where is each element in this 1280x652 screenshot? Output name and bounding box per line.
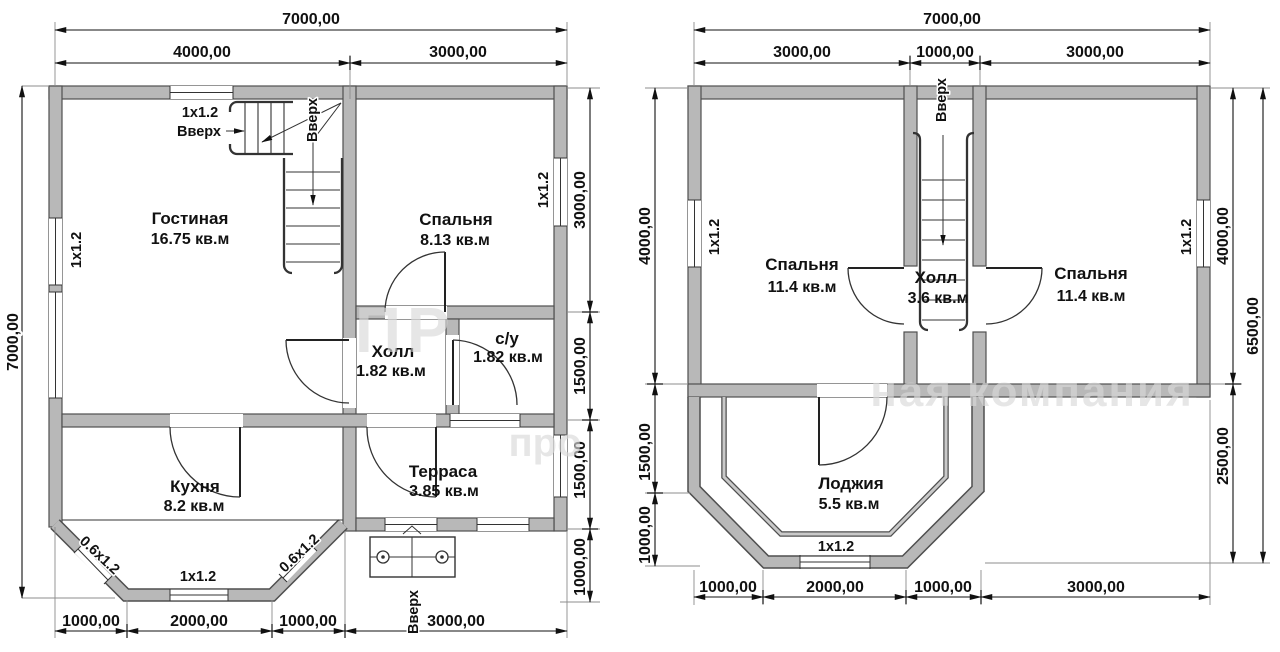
watermark-big: ПР [355, 294, 456, 366]
stairs-up-rotated-label: Вверх [934, 78, 950, 122]
dim-left-seg3: 1000,00 [637, 506, 654, 564]
room-label-hall: Холл [915, 268, 958, 287]
dim-right-seg4: 1000,00 [572, 538, 589, 596]
dim-bottom-seg3: 1000,00 [279, 613, 337, 630]
room-area-bedroom-right: 11.4 кв.м [1057, 288, 1126, 305]
dim-right-seg1: 3000,00 [572, 171, 589, 229]
watermark-partial: про [508, 421, 581, 465]
dim-left-seg1: 4000,00 [637, 207, 654, 265]
dim-top-seg1: 3000,00 [773, 44, 831, 61]
loggia-inner-rail [724, 397, 946, 534]
stairs-up-label: Вверх [177, 124, 221, 140]
left-plan-windows [49, 86, 567, 601]
room-label-bedroom-right: Спальня [1054, 264, 1127, 283]
window-label-left: 1х1.2 [707, 219, 723, 255]
watermark-company: ная компания [870, 367, 1194, 416]
dim-right-seg2: 2500,00 [1215, 427, 1232, 485]
window-right-bedroom [1197, 200, 1210, 267]
dim-top-total: 7000,00 [923, 11, 981, 28]
dim-top-seg2: 1000,00 [916, 44, 974, 61]
window-terrace-south-2 [477, 518, 529, 531]
window-label-top: 1х1.2 [182, 105, 218, 121]
door-living-hall [286, 338, 356, 408]
dim-bottom-seg4: 3000,00 [1067, 579, 1125, 596]
stairs-up-rotated-label: Вверх [305, 98, 321, 142]
door-bedroom-right [986, 268, 1042, 324]
room-label-wc: с/у [495, 329, 519, 348]
room-label-bedroom: Спальня [419, 210, 492, 229]
dim-right-seg2: 1500,00 [572, 337, 589, 395]
dim-bottom-seg3: 1000,00 [914, 579, 972, 596]
door-bedroom-left [848, 268, 904, 324]
left-plan-labels: Гостиная 16.75 кв.м Спальня 8.13 кв.м Хо… [69, 98, 552, 634]
dim-bottom-seg1: 1000,00 [62, 613, 120, 630]
window-terrace-south-1 [385, 518, 437, 531]
left-plan: 7000,00 4000,00 3000,00 7000,00 3000,00 … [5, 11, 600, 638]
dim-bottom-seg1: 1000,00 [699, 579, 757, 596]
dim-top-seg3: 3000,00 [1066, 44, 1124, 61]
window-right-bedroom [554, 158, 567, 226]
dim-right-seg1: 4000,00 [1215, 207, 1232, 265]
room-area-terrace: 3.85 кв.м [409, 483, 479, 500]
room-area-living: 16.75 кв.м [151, 231, 230, 248]
floor-plan-drawing: 7000,00 4000,00 3000,00 7000,00 3000,00 … [0, 0, 1280, 652]
dim-top-total: 7000,00 [282, 11, 340, 28]
room-label-living: Гостиная [152, 209, 229, 228]
window-bay-bottom [170, 589, 228, 601]
room-area-loggia: 5.5 кв.м [819, 496, 880, 513]
window-left-1 [49, 218, 62, 285]
room-area-kitchen: 8.2 кв.м [164, 498, 225, 515]
dim-bottom-seg2: 2000,00 [806, 579, 864, 596]
room-area-bedroom-left: 11.4 кв.м [768, 279, 837, 296]
window-label-right: 1х1.2 [1179, 219, 1195, 255]
room-label-terrace: Терраса [409, 462, 478, 481]
dim-left-total: 7000,00 [5, 313, 22, 371]
dim-bottom-seg2: 2000,00 [170, 613, 228, 630]
window-left-bedroom [688, 200, 701, 267]
right-plan-walls [688, 86, 1210, 562]
room-area-bedroom: 8.13 кв.м [420, 232, 490, 249]
room-label-bedroom-left: Спальня [765, 255, 838, 274]
watermark: ПР ная компания про [355, 294, 1194, 465]
left-plan-stairs [230, 102, 342, 273]
porch-up-label: Вверх [406, 590, 422, 634]
room-area-hall: 3.6 кв.м [908, 290, 969, 307]
window-label-loggia: 1х1.2 [818, 539, 854, 555]
window-label-bay-bottom: 1х1.2 [180, 569, 216, 585]
dim-top-seg2: 3000,00 [429, 44, 487, 61]
window-label-right: 1х1.2 [536, 172, 552, 208]
dim-left-seg2: 1500,00 [637, 423, 654, 481]
window-top [170, 86, 233, 99]
dim-right-total: 6500,00 [1245, 297, 1262, 355]
window-label-left: 1х1.2 [69, 232, 85, 268]
room-label-kitchen: Кухня [170, 477, 220, 496]
window-loggia [800, 555, 870, 569]
room-label-loggia: Лоджия [818, 474, 883, 493]
dim-bottom-seg4: 3000,00 [427, 613, 485, 630]
floor-plan-page: 7000,00 4000,00 3000,00 7000,00 3000,00 … [0, 0, 1280, 652]
dim-top-seg1: 4000,00 [173, 44, 231, 61]
entrance-porch [370, 526, 455, 577]
right-plan: Вверх 7000,00 3000,00 1000,00 3000,00 40… [637, 11, 1270, 605]
room-area-wc: 1.82 кв.м [473, 349, 543, 366]
window-left-2 [49, 292, 62, 398]
